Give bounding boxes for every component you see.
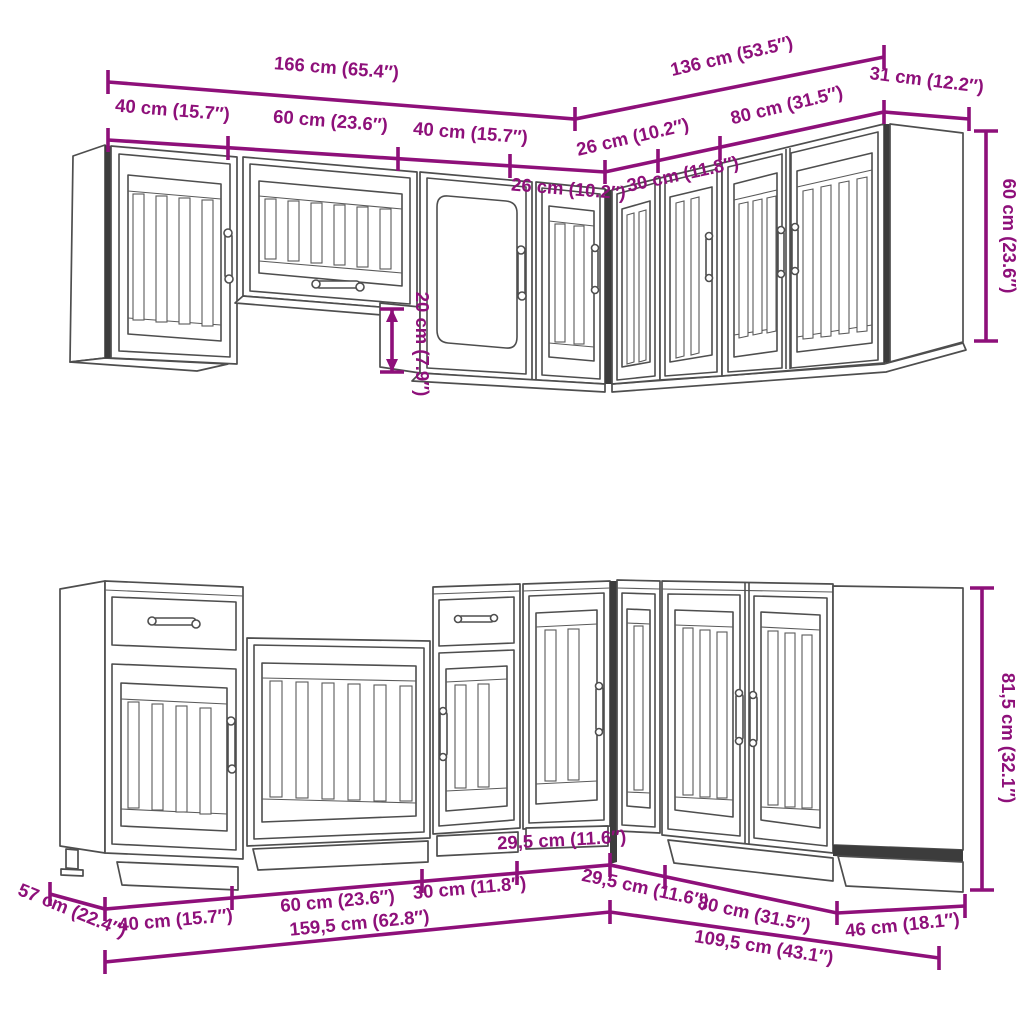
door-handle [227,717,236,773]
plinth [838,856,963,892]
wall-cabinet-40-left [70,145,237,371]
base-corner-cabinet-29-left [523,581,617,864]
base-corner-cabinet-29-right [617,580,660,833]
door-slats [683,628,727,798]
drawer-handle [455,615,498,623]
dim-wall-seg-80: 80 cm (31.5″) [728,81,845,128]
base-cabinet-80-double [662,581,833,881]
dim-wall-run-left: 166 cm (65.4″) [273,52,399,83]
dim-base-seg-295-left: 29,5 cm (11.6″) [497,826,627,854]
dim-base-height: 81,5 cm (32.1″) [998,673,1019,803]
dim-wall-seg-40b: 40 cm (15.7″) [412,118,528,148]
door-handle [440,708,448,761]
diagram-svg: 166 cm (65.4″) 136 cm (53.5″) 31 cm (12.… [0,0,1024,1024]
plinth [117,862,238,890]
dim-wall-run-right: 136 cm (53.5″) [668,31,795,80]
door-handle [596,683,604,736]
door-slats [739,196,776,338]
wall-end-cabinet-31 [884,124,963,363]
dim-base-run-right: 109,5 cm (43.1″) [693,925,835,968]
cabinet-dimension-diagram: 166 cm (65.4″) 136 cm (53.5″) 31 cm (12.… [0,0,1024,1024]
dim-base-seg-30: 30 cm (11.8″) [412,872,527,903]
dim-wall-seg-40a: 40 cm (15.7″) [114,95,230,125]
base-cabinet-40-drawer [60,581,243,890]
wall-glass-cabinet-40 [420,172,532,380]
base-cabinet-30-drawer [433,584,520,856]
dim-wall-end-width: 31 cm (12.2″) [869,62,986,97]
dim-wall-seg-60: 60 cm (23.6″) [272,106,388,136]
door-handle [706,233,713,282]
door-handle [517,246,526,300]
wall-corner-cabinet-26-right [612,178,660,384]
wall-cabinet-80-double [722,124,884,376]
dim-wall-height: 60 cm (23.6″) [999,179,1020,294]
base-end-panel-46 [833,586,963,892]
door-slat [634,626,643,790]
wall-corner-cabinet-26-left [536,182,612,384]
door-slats [768,631,812,808]
door-handle [224,229,233,283]
wall-cabinet-30 [660,163,722,380]
wall-units-group [70,124,966,392]
dim-base-seg-40: 40 cm (15.7″) [117,904,233,935]
door-handle [592,245,599,294]
dim-wall-seg-26-right: 26 cm (10.2″) [574,114,691,160]
base-cabinet-60 [247,638,430,870]
dim-hood-offset: 20 cm (7.9″) [412,292,433,397]
